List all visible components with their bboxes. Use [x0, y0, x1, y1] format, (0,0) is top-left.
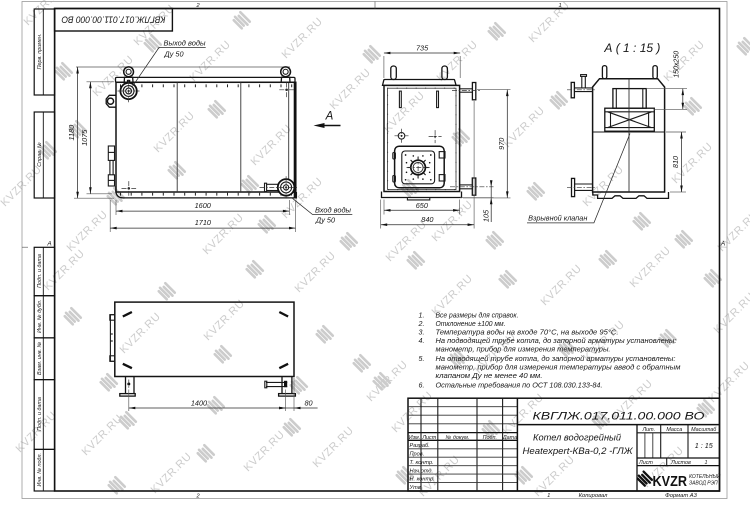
svg-text:Подп. и дата: Подп. и дата	[37, 397, 43, 431]
svg-text:1.: 1.	[419, 311, 425, 319]
svg-text:А ( 1 : 15 ): А ( 1 : 15 )	[603, 41, 660, 55]
svg-text:Н. контр.: Н. контр.	[410, 477, 435, 483]
svg-text:КВГЛЖ.017.011.00.000 ВО: КВГЛЖ.017.011.00.000 ВО	[533, 410, 705, 422]
svg-text:Копировал: Копировал	[579, 493, 609, 499]
svg-text:Инв. № дубл.: Инв. № дубл.	[37, 300, 43, 333]
svg-text:Дата: Дата	[502, 435, 517, 441]
svg-text:Выход воды: Выход воды	[164, 38, 207, 47]
svg-text:Пров.: Пров.	[410, 451, 425, 457]
svg-text:На подводящей трубе котла, до: На подводящей трубе котла, до запорной а…	[436, 337, 677, 345]
svg-text:А: А	[46, 240, 51, 247]
svg-text:Ду 50: Ду 50	[315, 216, 335, 225]
svg-text:Вход воды: Вход воды	[315, 205, 352, 214]
svg-text:клапаном Ду не менее 40 мм.: клапаном Ду не менее 40 мм.	[436, 372, 543, 380]
svg-text:Т. контр.: Т. контр.	[410, 460, 434, 466]
svg-text:Взрывной клапан: Взрывной клапан	[528, 214, 587, 223]
svg-text:Масса: Масса	[666, 427, 682, 433]
svg-text:1 : 15: 1 : 15	[695, 441, 714, 450]
svg-text:1400: 1400	[191, 398, 207, 407]
svg-text:Лист: Лист	[421, 435, 436, 441]
svg-text:Подп.: Подп.	[483, 435, 497, 441]
svg-text:На отводящей трубе котла, до з: На отводящей трубе котла, до запорной ар…	[436, 355, 676, 363]
svg-text:Изм.: Изм.	[409, 435, 421, 441]
svg-text:3.: 3.	[419, 329, 425, 337]
svg-text:Утв.: Утв.	[409, 485, 423, 491]
svg-text:1710: 1710	[195, 218, 211, 227]
svg-text:105: 105	[482, 209, 491, 222]
svg-text:80: 80	[304, 398, 312, 407]
svg-text:Котел водогрейный: Котел водогрейный	[533, 432, 621, 442]
svg-text:КОТЕЛЬНЫЙ: КОТЕЛЬНЫЙ	[689, 472, 721, 480]
svg-text:810: 810	[671, 156, 680, 168]
svg-text:Все размеры для справок.: Все размеры для справок.	[436, 311, 519, 319]
svg-text:Нач.отд.: Нач.отд.	[410, 468, 434, 474]
svg-text:Листов: Листов	[670, 460, 691, 466]
svg-text:650: 650	[416, 201, 428, 210]
svg-text:150х250: 150х250	[674, 51, 681, 78]
svg-text:Heatexpert-КВа-0,2 -ГЛЖ: Heatexpert-КВа-0,2 -ГЛЖ	[523, 446, 634, 456]
svg-text:Лист: Лист	[638, 460, 653, 466]
svg-text:Масштаб: Масштаб	[691, 427, 717, 433]
svg-text:840: 840	[421, 215, 433, 224]
svg-text:970: 970	[497, 138, 506, 150]
svg-text:№ докум.: № докум.	[446, 435, 470, 441]
svg-text:4.: 4.	[419, 337, 425, 345]
svg-text:Остальные требования по ОСТ 10: Остальные требования по ОСТ 108.030.133-…	[436, 381, 603, 389]
svg-text:манометр, прибор для измерения: манометр, прибор для измерения температу…	[436, 364, 681, 372]
svg-text:Ду 50: Ду 50	[164, 49, 184, 58]
svg-text:5.: 5.	[419, 355, 425, 363]
svg-text:1075: 1075	[80, 129, 89, 146]
svg-text:Подп. и дата: Подп. и дата	[37, 254, 43, 288]
svg-text:2.: 2.	[418, 320, 425, 328]
svg-text:Лит.: Лит.	[641, 427, 655, 433]
svg-text:Температура воды на входе 70°С: Температура воды на входе 70°С, на выход…	[436, 329, 619, 337]
svg-text:Справ. №: Справ. №	[37, 142, 43, 167]
svg-text:Отклонение ±100 мм.: Отклонение ±100 мм.	[436, 320, 506, 328]
svg-text:1600: 1600	[195, 201, 211, 210]
svg-text:Формат А3: Формат А3	[665, 493, 697, 499]
svg-text:ЗАВОД РЭП: ЗАВОД РЭП	[689, 480, 718, 486]
svg-text:манометр, прибор для измерения: манометр, прибор для измерения температу…	[436, 346, 611, 354]
svg-text:KVZR: KVZR	[653, 473, 688, 490]
svg-text:735: 735	[416, 44, 429, 53]
svg-text:1: 1	[547, 493, 550, 499]
svg-text:Разраб.: Разраб.	[410, 443, 430, 449]
svg-text:1: 1	[558, 3, 561, 9]
svg-text:Перв. примен.: Перв. примен.	[37, 34, 43, 70]
svg-text:1180: 1180	[67, 125, 76, 141]
svg-text:А: А	[720, 240, 725, 247]
svg-text:1: 1	[705, 460, 708, 466]
svg-text:6.: 6.	[419, 381, 425, 389]
svg-text:КВГЛЖ.017.011.00.000 ВО: КВГЛЖ.017.011.00.000 ВО	[62, 14, 166, 24]
svg-text:А: А	[325, 111, 334, 123]
svg-text:Инв. № подл.: Инв. № подл.	[37, 453, 43, 486]
svg-text:Взам. инв. №: Взам. инв. №	[37, 341, 43, 375]
